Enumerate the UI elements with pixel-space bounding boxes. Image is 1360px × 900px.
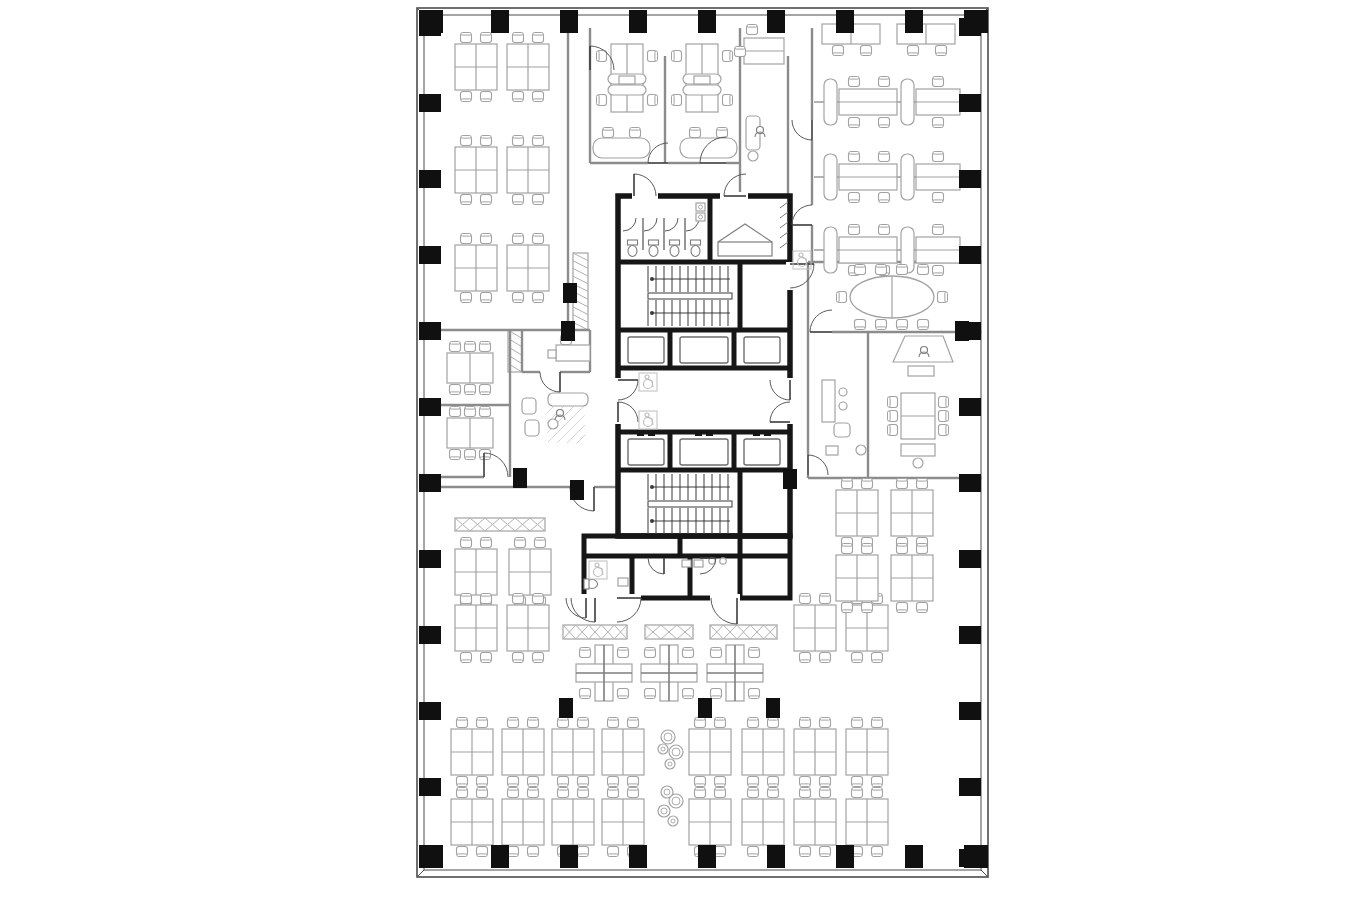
chair: [597, 95, 607, 106]
chair: [872, 847, 883, 857]
column: [959, 18, 981, 36]
chair: [715, 777, 726, 787]
chair: [837, 292, 847, 303]
toilet: [628, 240, 638, 257]
chair: [723, 51, 733, 62]
chair: [481, 293, 492, 303]
desk-cluster: [602, 718, 644, 787]
chair: [820, 718, 831, 728]
chair: [513, 195, 524, 205]
wheelchair-icon: [589, 561, 607, 579]
column: [419, 322, 441, 340]
chair: [558, 788, 569, 798]
chair: [748, 718, 759, 728]
desk-cluster: [451, 718, 493, 787]
sofa: [548, 393, 588, 406]
chair: [528, 777, 539, 787]
chair: [450, 407, 461, 417]
chair: [820, 847, 831, 857]
chair: [918, 320, 929, 330]
elevator-car: [628, 337, 664, 370]
chair: [450, 450, 461, 460]
chair: [897, 320, 908, 330]
chair: [933, 193, 944, 203]
door-arc: [810, 310, 832, 332]
chair: [800, 594, 811, 604]
chair: [939, 425, 949, 436]
chair: [917, 603, 928, 613]
chair: [855, 320, 866, 330]
chair: [695, 718, 706, 728]
meeting-table: [447, 342, 493, 395]
column: [959, 849, 981, 867]
chair: [695, 777, 706, 787]
desk-cluster: [507, 136, 549, 205]
chair: [749, 648, 760, 658]
chair: [748, 847, 759, 857]
column: [570, 480, 584, 500]
chair: [533, 136, 544, 146]
chair: [477, 788, 488, 798]
chair: [465, 450, 476, 460]
chair: [480, 342, 491, 352]
column: [419, 94, 441, 112]
chair: [608, 847, 619, 857]
chair: [533, 195, 544, 205]
chair: [879, 118, 890, 128]
desk-cluster: [794, 788, 836, 857]
column: [959, 778, 981, 796]
chair: [533, 293, 544, 303]
desk-cluster: [455, 234, 497, 303]
column: [955, 321, 969, 341]
chair: [461, 538, 472, 548]
chair: [872, 788, 883, 798]
desk-cluster: [451, 788, 493, 857]
chair: [533, 653, 544, 663]
chair: [618, 648, 629, 658]
door-arc: [648, 558, 664, 574]
column: [959, 170, 981, 188]
chair: [628, 788, 639, 798]
meeting-table: [447, 407, 493, 460]
column: [419, 398, 441, 416]
chair: [820, 653, 831, 663]
chair: [917, 544, 928, 554]
chair: [465, 407, 476, 417]
chair: [917, 479, 928, 489]
elevator-car: [744, 432, 780, 465]
chair: [508, 718, 519, 728]
chair: [481, 234, 492, 244]
chair: [465, 342, 476, 352]
column: [419, 702, 441, 720]
chair: [457, 847, 468, 857]
chair: [558, 777, 569, 787]
toilet: [691, 240, 701, 257]
desk-cluster: [891, 544, 933, 613]
chair: [747, 25, 758, 35]
column: [419, 246, 441, 264]
door-opening: [710, 594, 740, 602]
chair: [648, 95, 658, 106]
chair: [461, 195, 472, 205]
chair: [477, 847, 488, 857]
lounge-sofa-group: [522, 393, 588, 444]
chair: [450, 385, 461, 395]
wheelchair-icon: [639, 373, 657, 391]
chair: [939, 411, 949, 422]
stairwell: [648, 266, 732, 326]
chair: [735, 47, 746, 57]
desk-cluster: [507, 33, 549, 102]
chair: [461, 234, 472, 244]
chair: [862, 479, 873, 489]
elevator-car: [680, 337, 728, 370]
chair: [862, 603, 873, 613]
chair: [852, 788, 863, 798]
exec-meeting-table: [888, 393, 949, 468]
chair: [723, 95, 733, 106]
desk-cluster: [552, 718, 594, 787]
chair: [533, 594, 544, 604]
elevator-car: [744, 337, 780, 370]
chair: [508, 777, 519, 787]
chair: [820, 594, 831, 604]
reception-desk: [893, 336, 953, 376]
chair: [800, 718, 811, 728]
chair: [683, 689, 694, 699]
chair: [842, 479, 853, 489]
chair: [872, 777, 883, 787]
desk-cluster: [507, 234, 549, 303]
chair: [450, 342, 461, 352]
chair: [936, 46, 947, 56]
desk-cluster: [689, 718, 731, 787]
chair: [533, 33, 544, 43]
chair: [800, 653, 811, 663]
floor-plan-page: [0, 0, 1360, 900]
wheelchair-icon: [639, 411, 657, 429]
chair: [645, 689, 656, 699]
column: [560, 10, 578, 33]
chair: [481, 92, 492, 102]
toilet: [670, 240, 680, 257]
desk-cluster: [502, 718, 544, 787]
chair: [628, 718, 639, 728]
chair: [861, 46, 872, 56]
column: [698, 10, 716, 33]
chair: [695, 788, 706, 798]
cross-desk-pod: [576, 645, 632, 701]
chair: [618, 689, 629, 699]
column: [561, 321, 575, 341]
bench-desk-pod: [672, 44, 733, 112]
column: [767, 845, 785, 868]
chair: [461, 653, 472, 663]
chair: [513, 594, 524, 604]
chair: [533, 92, 544, 102]
chair: [533, 234, 544, 244]
chair: [608, 788, 619, 798]
column: [491, 845, 509, 868]
chair: [580, 689, 591, 699]
chair: [717, 128, 728, 138]
chair: [481, 136, 492, 146]
toilet: [649, 240, 659, 257]
door-opening: [632, 192, 658, 200]
accessible-wc: [584, 578, 628, 589]
chair: [580, 648, 591, 658]
building-core: [575, 192, 794, 602]
chair: [672, 95, 682, 106]
chair: [800, 847, 811, 857]
chair: [842, 544, 853, 554]
chair: [748, 788, 759, 798]
column: [563, 283, 577, 303]
toilet-stalls: [623, 218, 701, 257]
column: [783, 469, 797, 489]
chair: [897, 603, 908, 613]
chair: [715, 847, 726, 857]
armchair: [522, 398, 536, 414]
chair: [908, 46, 919, 56]
desk-cluster: [836, 479, 878, 548]
chair: [933, 225, 944, 235]
chair: [715, 788, 726, 798]
chair: [879, 152, 890, 162]
column: [419, 550, 441, 568]
credenza: [901, 444, 935, 456]
chair: [528, 847, 539, 857]
chair: [933, 152, 944, 162]
chair: [800, 777, 811, 787]
chair: [513, 33, 524, 43]
chair: [457, 788, 468, 798]
cross-desk-pod: [707, 645, 763, 701]
chair: [558, 718, 569, 728]
chair: [711, 689, 722, 699]
chair: [480, 407, 491, 417]
desk-cluster: [794, 594, 836, 663]
chair: [481, 594, 492, 604]
chair: [608, 777, 619, 787]
bench-desk-pod: [597, 44, 658, 112]
print-alcove: [735, 25, 785, 162]
chair: [477, 777, 488, 787]
chair: [897, 265, 908, 275]
chair: [515, 538, 526, 548]
chair: [939, 397, 949, 408]
column: [560, 845, 578, 868]
chair: [578, 788, 589, 798]
chair: [849, 193, 860, 203]
door-arc: [792, 120, 812, 140]
chair: [461, 136, 472, 146]
column: [698, 845, 716, 868]
chair: [748, 777, 759, 787]
chair: [513, 653, 524, 663]
bench-desk-row: [814, 152, 980, 203]
desk-cluster: [846, 718, 888, 787]
chair: [849, 77, 860, 87]
column: [959, 626, 981, 644]
accessibility-icons: [589, 251, 811, 579]
chair: [690, 128, 701, 138]
column: [767, 10, 785, 33]
exec-office-furniture: [822, 380, 866, 455]
chair: [852, 653, 863, 663]
chair: [897, 544, 908, 554]
chair: [872, 653, 883, 663]
column: [419, 626, 441, 644]
column: [959, 398, 981, 416]
chair: [508, 788, 519, 798]
chair: [879, 77, 890, 87]
sink: [720, 558, 726, 564]
chair: [862, 544, 873, 554]
chair: [461, 293, 472, 303]
chair: [481, 538, 492, 548]
column: [766, 698, 780, 718]
chair: [528, 718, 539, 728]
chair: [749, 689, 760, 699]
chair: [578, 777, 589, 787]
chair: [465, 385, 476, 395]
chair: [918, 265, 929, 275]
chair: [879, 225, 890, 235]
chair: [849, 225, 860, 235]
column: [491, 10, 509, 33]
desk-cluster: [794, 718, 836, 787]
chair: [879, 193, 890, 203]
chair: [852, 718, 863, 728]
folding-bed: [718, 224, 772, 256]
curved-desk: [593, 128, 650, 159]
door-arc: [792, 205, 812, 225]
chair: [457, 777, 468, 787]
chair: [852, 777, 863, 787]
urinal: [694, 560, 703, 567]
elevator-car: [680, 432, 728, 465]
urinal: [682, 560, 691, 567]
curved-desk: [680, 128, 737, 159]
column: [629, 10, 647, 33]
column: [905, 10, 923, 33]
chair: [645, 648, 656, 658]
chair: [597, 51, 607, 62]
chair: [578, 718, 589, 728]
door-arc: [540, 372, 560, 392]
column: [836, 10, 854, 33]
chair: [513, 136, 524, 146]
desk-cluster: [742, 718, 784, 787]
chair: [513, 293, 524, 303]
chair: [528, 788, 539, 798]
chair: [535, 538, 546, 548]
chair: [672, 51, 682, 62]
column: [836, 845, 854, 868]
chair: [457, 718, 468, 728]
chair: [477, 718, 488, 728]
chair: [876, 320, 887, 330]
chair: [833, 46, 844, 56]
chair: [630, 128, 641, 138]
chair: [480, 385, 491, 395]
chair: [648, 51, 658, 62]
chair: [888, 425, 898, 436]
chair: [872, 718, 883, 728]
column: [419, 778, 441, 796]
column: [698, 698, 712, 718]
chair: [461, 33, 472, 43]
armchair: [834, 423, 850, 437]
chair: [578, 847, 589, 857]
column: [559, 698, 573, 718]
chair: [768, 788, 779, 798]
chair: [938, 292, 948, 303]
chair: [481, 195, 492, 205]
chair: [876, 265, 887, 275]
column: [513, 468, 527, 488]
column: [905, 845, 923, 868]
elevator-car: [628, 432, 664, 465]
desk-cluster: [455, 33, 497, 102]
chair: [768, 777, 779, 787]
column: [959, 550, 981, 568]
chair: [855, 265, 866, 275]
chair: [933, 77, 944, 87]
stairwell: [648, 474, 732, 534]
chair: [897, 479, 908, 489]
column: [419, 474, 441, 492]
chair: [800, 788, 811, 798]
chair: [888, 397, 898, 408]
chair: [849, 118, 860, 128]
chair: [461, 92, 472, 102]
desk-cluster: [455, 136, 497, 205]
chair: [508, 847, 519, 857]
chair: [513, 234, 524, 244]
column: [959, 246, 981, 264]
chair: [628, 777, 639, 787]
chair: [768, 718, 779, 728]
desk-cluster: [891, 479, 933, 548]
column: [959, 474, 981, 492]
chair: [715, 718, 726, 728]
door-arc: [808, 455, 828, 475]
chair: [608, 718, 619, 728]
chair: [820, 777, 831, 787]
chair: [481, 33, 492, 43]
chair: [849, 152, 860, 162]
column: [419, 849, 441, 867]
column: [629, 845, 647, 868]
chair: [683, 648, 694, 658]
chair: [842, 603, 853, 613]
column: [959, 94, 981, 112]
bench-desk-row: [814, 77, 980, 128]
chair: [933, 266, 944, 276]
chair: [933, 118, 944, 128]
column: [419, 18, 441, 36]
chair: [481, 653, 492, 663]
chair: [820, 788, 831, 798]
column: [419, 170, 441, 188]
chair: [480, 450, 491, 460]
chair: [888, 411, 898, 422]
chair: [513, 92, 524, 102]
